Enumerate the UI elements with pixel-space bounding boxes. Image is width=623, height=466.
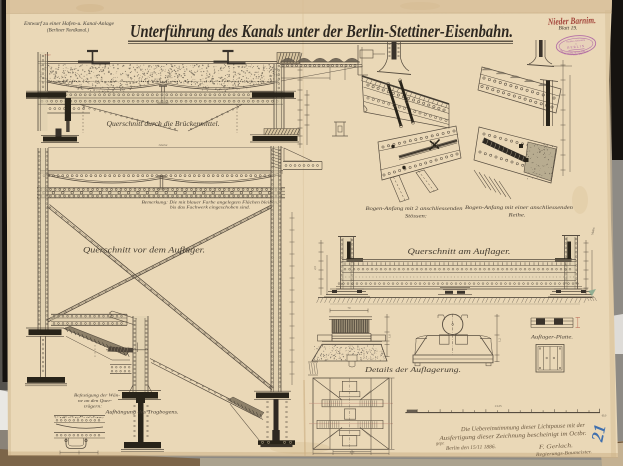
svg-text:gepr.: gepr.: [436, 441, 445, 446]
svg-text:Reihe.: Reihe.: [507, 213, 525, 219]
svg-text:1:125: 1:125: [494, 404, 502, 408]
svg-text:70: 70: [348, 306, 352, 310]
svg-text:Gleise: Gleise: [159, 143, 168, 147]
svg-text:ne an den Quer-: ne an den Quer-: [78, 398, 113, 403]
svg-text:Querschnitt am Auflager.: Querschnitt am Auflager.: [408, 247, 511, 256]
svg-text:60,0: 60,0: [602, 415, 607, 418]
svg-text:Auflager-Platte.: Auflager-Platte.: [530, 334, 573, 341]
svg-text:Querschnitt vor dem Auflager.: Querschnitt vor dem Auflager.: [83, 246, 205, 255]
svg-text:Entwurf zu einer Hafen-u. Kana: Entwurf zu einer Hafen-u. Kanal-Anlage: [23, 20, 115, 27]
svg-text:Blatt 19.: Blatt 19.: [559, 26, 578, 32]
svg-text:Bogen-Anfang mit einer anschli: Bogen-Anfang mit einer anschliessenden: [465, 204, 573, 211]
svg-text:Befestigung der Wän-: Befestigung der Wän-: [74, 393, 121, 398]
svg-text:Details der Auflagerung.: Details der Auflagerung.: [364, 365, 461, 374]
svg-text:Bogen-Anfang mit 2 anschliesse: Bogen-Anfang mit 2 anschliessenden: [366, 205, 463, 212]
svg-text:trägern:: trägern:: [84, 404, 103, 409]
svg-text:+37,40: +37,40: [43, 54, 51, 57]
svg-text:(Berliner Nordkanal.): (Berliner Nordkanal.): [47, 27, 89, 34]
svg-text:4,20: 4,20: [350, 451, 355, 454]
svg-text:Querschnitt durch die Brückenm: Querschnitt durch die Brückenmittel.: [107, 119, 220, 128]
svg-text:Aufhängung des Tragbogens.: Aufhängung des Tragbogens.: [104, 409, 178, 416]
svg-text:Stössen:: Stössen:: [405, 214, 427, 220]
svg-text:bis das Fachwerk eingeschoben: bis das Fachwerk eingeschoben sind.: [170, 205, 250, 210]
svg-text:Unterführung des Kanals unter: Unterführung des Kanals unter der Berlin…: [130, 21, 513, 41]
